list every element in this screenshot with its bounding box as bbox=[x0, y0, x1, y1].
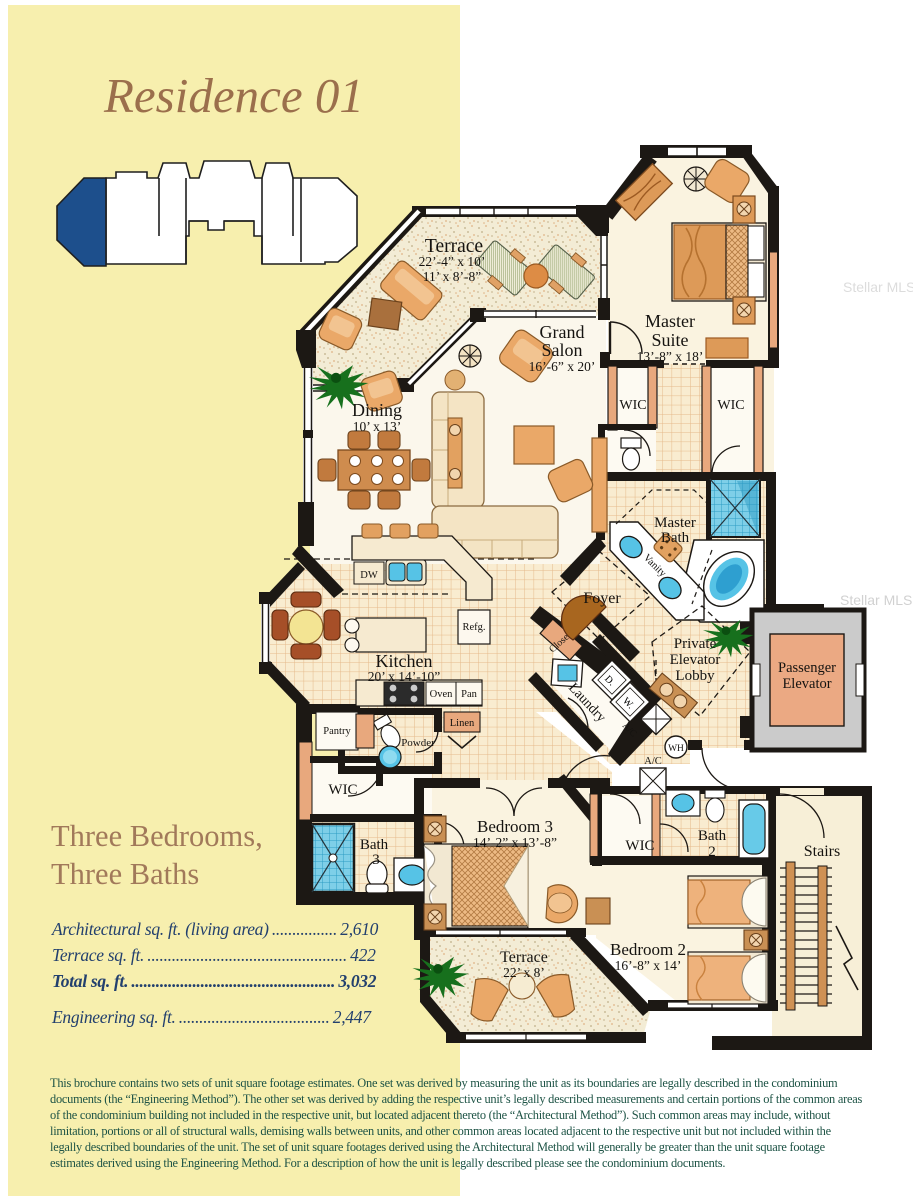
svg-text:estimates derived using the En: estimates derived using the Engineering … bbox=[50, 1156, 725, 1170]
svg-text:Private: Private bbox=[674, 636, 717, 652]
svg-text:Master: Master bbox=[654, 515, 696, 531]
svg-text:WIC: WIC bbox=[625, 838, 654, 854]
svg-text:This brochure contains two set: This brochure contains two sets of unit … bbox=[50, 1076, 838, 1090]
svg-text:Total sq. ft. ................: Total sq. ft. ..........................… bbox=[52, 971, 377, 991]
svg-text:documents (the “Engineering Me: documents (the “Engineering Method”). Th… bbox=[50, 1092, 862, 1106]
svg-text:WH: WH bbox=[668, 744, 684, 754]
svg-text:Lobby: Lobby bbox=[675, 668, 715, 684]
svg-text:14’-2” x 13’-8”: 14’-2” x 13’-8” bbox=[473, 835, 557, 850]
svg-text:Engineering sq. ft. ..........: Engineering sq. ft. ....................… bbox=[51, 1007, 372, 1027]
svg-text:Suite: Suite bbox=[651, 330, 688, 350]
svg-text:13’-8” x 18’: 13’-8” x 18’ bbox=[637, 349, 704, 364]
svg-text:Architectural sq. ft. (living: Architectural sq. ft. (living area) ....… bbox=[51, 919, 379, 939]
svg-text:Stairs: Stairs bbox=[804, 843, 840, 860]
svg-text:WIC: WIC bbox=[619, 398, 646, 413]
svg-text:22’-4” x 10’: 22’-4” x 10’ bbox=[419, 254, 486, 269]
svg-text:A/C: A/C bbox=[644, 756, 662, 767]
svg-text:Stellar MLS: Stellar MLS bbox=[840, 592, 912, 608]
svg-text:limitation, portions or all of: limitation, portions or all of structura… bbox=[50, 1124, 832, 1138]
svg-text:Bath: Bath bbox=[698, 828, 727, 844]
svg-text:Bedroom 2: Bedroom 2 bbox=[610, 940, 686, 959]
svg-text:11’ x 8’-8”: 11’ x 8’-8” bbox=[423, 269, 481, 284]
svg-text:16’-8” x 14’: 16’-8” x 14’ bbox=[615, 958, 682, 973]
svg-text:Bath: Bath bbox=[661, 530, 690, 546]
svg-text:Passenger: Passenger bbox=[778, 660, 836, 676]
svg-text:22’ x 8’: 22’ x 8’ bbox=[503, 965, 545, 980]
svg-text:legally described boundaries o: legally described boundaries of the unit… bbox=[50, 1140, 826, 1154]
svg-text:Three Baths: Three Baths bbox=[51, 857, 199, 891]
svg-text:WIC: WIC bbox=[328, 782, 357, 798]
svg-text:10’ x 13’: 10’ x 13’ bbox=[353, 419, 402, 434]
svg-text:Linen: Linen bbox=[450, 718, 475, 729]
svg-text:of the condominium building no: of the condominium building not included… bbox=[50, 1108, 831, 1122]
svg-text:Stellar MLS: Stellar MLS bbox=[843, 279, 913, 295]
svg-text:20’ x 14’-10”: 20’ x 14’-10” bbox=[368, 669, 440, 684]
svg-text:Elevator: Elevator bbox=[782, 676, 831, 692]
svg-text:Master: Master bbox=[645, 311, 695, 331]
svg-text:Powder: Powder bbox=[401, 737, 435, 749]
svg-text:2: 2 bbox=[708, 844, 716, 860]
svg-text:Foyer: Foyer bbox=[583, 590, 621, 607]
svg-text:WIC: WIC bbox=[717, 398, 744, 413]
svg-text:Oven: Oven bbox=[430, 689, 453, 700]
svg-text:Kitchen: Kitchen bbox=[376, 651, 433, 671]
svg-text:DW: DW bbox=[360, 570, 378, 581]
svg-text:Pantry: Pantry bbox=[323, 726, 351, 737]
svg-text:Residence 01: Residence 01 bbox=[103, 68, 364, 123]
svg-text:Bath: Bath bbox=[360, 837, 389, 853]
svg-text:Terrace sq. ft. ..............: Terrace sq. ft. ........................… bbox=[52, 945, 376, 965]
svg-text:Pan: Pan bbox=[461, 689, 478, 700]
svg-text:Grand: Grand bbox=[540, 322, 585, 342]
svg-text:3: 3 bbox=[372, 852, 380, 868]
svg-text:Salon: Salon bbox=[541, 340, 582, 360]
svg-text:Three Bedrooms,: Three Bedrooms, bbox=[51, 819, 263, 853]
svg-text:Bedroom 3: Bedroom 3 bbox=[477, 817, 553, 836]
svg-text:Refg.: Refg. bbox=[462, 622, 485, 633]
svg-text:Elevator: Elevator bbox=[670, 652, 721, 668]
svg-text:Terrace: Terrace bbox=[500, 949, 548, 966]
svg-text:16’-6” x 20’: 16’-6” x 20’ bbox=[529, 359, 596, 374]
svg-text:Dining: Dining bbox=[352, 400, 402, 420]
